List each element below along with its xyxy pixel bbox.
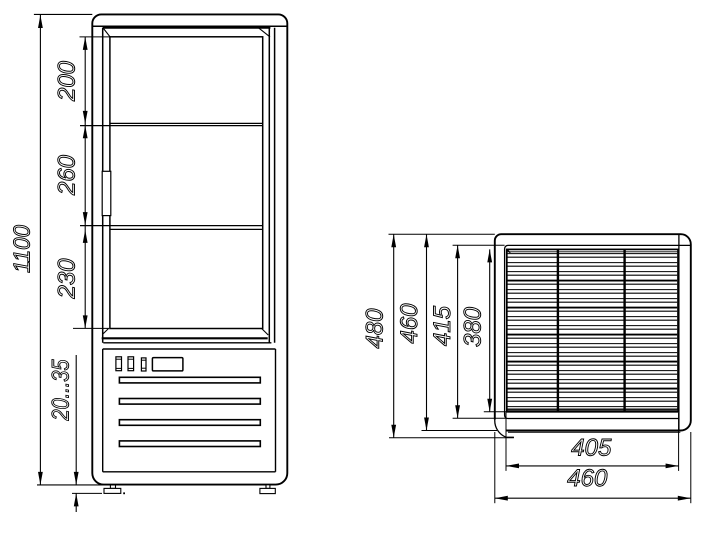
svg-text:460: 460 bbox=[567, 465, 608, 492]
svg-text:20...35: 20...35 bbox=[47, 359, 74, 421]
svg-text:200: 200 bbox=[53, 60, 80, 102]
svg-text:480: 480 bbox=[361, 308, 388, 349]
svg-text:405: 405 bbox=[571, 434, 612, 461]
svg-text:460: 460 bbox=[396, 303, 423, 344]
svg-text:1100: 1100 bbox=[9, 225, 35, 273]
svg-text:415: 415 bbox=[429, 305, 456, 346]
svg-text:380: 380 bbox=[459, 306, 486, 347]
svg-text:230: 230 bbox=[54, 258, 81, 300]
svg-text:260: 260 bbox=[53, 154, 80, 196]
